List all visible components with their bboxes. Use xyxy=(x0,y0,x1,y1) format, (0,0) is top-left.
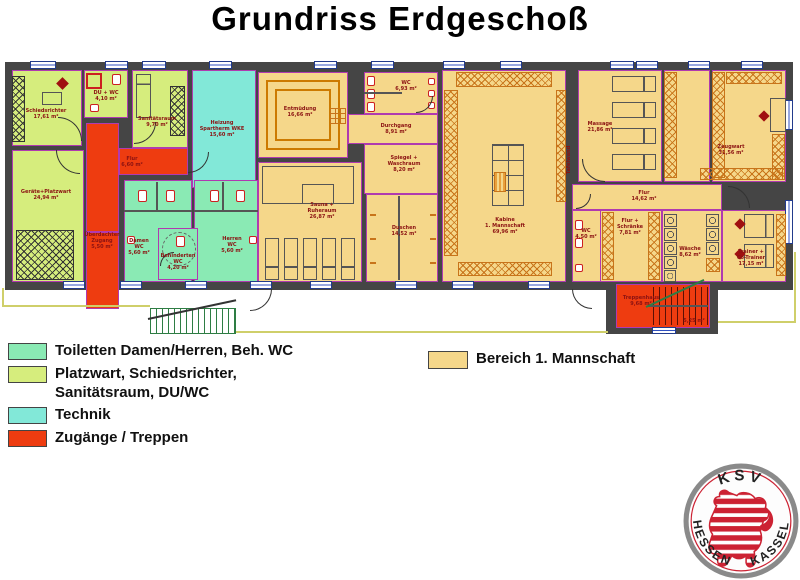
locker-shelf xyxy=(444,90,458,256)
window xyxy=(371,61,394,69)
legend-item-platzwart: Platzwart, Schiedsrichter, Sanitätsraum,… xyxy=(8,365,293,403)
table xyxy=(744,214,774,238)
table xyxy=(612,76,656,92)
window xyxy=(142,61,166,69)
partition-line xyxy=(124,210,192,212)
table xyxy=(612,154,656,170)
partition-line xyxy=(364,92,402,94)
sanitary-fixture xyxy=(138,190,147,202)
room-label-schiedsrichter: Schiedsrichter17,61 m² xyxy=(26,108,67,120)
room-label-massage: Massage21,86 m² xyxy=(588,121,613,133)
room-label-du_wc: DU + WC4,10 m² xyxy=(93,90,118,102)
window xyxy=(636,61,658,69)
legend-swatch-team xyxy=(428,351,468,369)
shower-jet xyxy=(370,214,376,216)
shower-jet xyxy=(370,262,376,264)
room-label-sanitaetsraum: Sanitätsraum9,70 m² xyxy=(138,116,176,128)
sanitary-fixture xyxy=(367,76,375,86)
door-swing xyxy=(572,289,592,309)
locker-shelf xyxy=(712,72,725,178)
legend-label-toiletten: Toiletten Damen/Herren, Beh. WC xyxy=(55,342,293,361)
sanitary-fixture xyxy=(249,236,257,244)
room-label-beh_wc: BehindertenWC4,20 m² xyxy=(161,253,196,271)
lounger xyxy=(303,238,317,280)
locker-shelf xyxy=(456,72,552,87)
room-label-heizung: HeizungSpartherm WKE15,60 m² xyxy=(200,120,245,138)
locker-shelf xyxy=(664,72,677,178)
washing-machine xyxy=(664,256,677,269)
site-boundary-line xyxy=(794,252,796,323)
shower-jet xyxy=(430,214,436,216)
window xyxy=(250,281,272,289)
room-herren_wc xyxy=(194,180,258,282)
pool-ladder xyxy=(330,108,346,124)
window xyxy=(395,281,417,289)
partition-line xyxy=(156,182,158,210)
site-boundary-line xyxy=(2,305,150,307)
site-boundary-line xyxy=(236,331,608,333)
room-label-waesche: Wäsche8,62 m² xyxy=(679,246,701,258)
sanitary-fixture xyxy=(428,78,435,85)
window xyxy=(105,61,128,69)
door-swing xyxy=(250,289,272,311)
room-label-kabine: Kabine1. Mannschaft69,96 m² xyxy=(485,217,525,235)
window xyxy=(452,281,474,289)
shower-jet xyxy=(430,262,436,264)
sanitary-fixture xyxy=(367,89,375,99)
legend-label-team: Bereich 1. Mannschaft xyxy=(476,350,635,369)
washing-machine xyxy=(664,242,677,255)
room-flur_links xyxy=(86,123,119,232)
lounger xyxy=(284,238,298,280)
storage-shelf xyxy=(170,86,185,136)
window xyxy=(63,281,85,289)
room-label-sauna: Sauna +Ruheraum26,87 m² xyxy=(308,202,337,220)
sanitary-fixture xyxy=(236,190,245,202)
room-label-entmuedung: Entmüdung16,66 m² xyxy=(284,106,316,118)
legend-swatch-technik xyxy=(8,407,47,424)
partition-line xyxy=(398,196,400,280)
window xyxy=(741,61,763,69)
legend-swatch-platzwart xyxy=(8,366,47,383)
room-label-zeugwart: Zeugwart31,56 m² xyxy=(717,144,744,156)
window xyxy=(528,281,550,289)
ksv-hessen-kassel-logo: KSV HESSEN KASSEL xyxy=(682,462,800,580)
window xyxy=(500,61,522,69)
lounger xyxy=(265,238,279,280)
partition-line xyxy=(194,210,258,212)
partition-line xyxy=(222,182,224,210)
locker-shelf xyxy=(458,262,552,276)
legend-label-platzwart-line2: Sanitätsraum, DU/WC xyxy=(55,384,237,403)
shower-jet xyxy=(370,238,376,240)
legend-label-platzwart: Platzwart, Schiedsrichter, Sanitätsraum,… xyxy=(55,365,237,403)
table xyxy=(612,128,656,144)
locker-shelf xyxy=(726,72,782,84)
site-boundary-line xyxy=(718,321,796,323)
room-label-tafelwand: Tafelwand xyxy=(566,146,572,175)
window xyxy=(652,327,676,334)
room-label-flur_links: Flur6,60 m² xyxy=(121,156,142,168)
room-label-treppenhaus: Treppenhaus9,68 m² xyxy=(623,295,659,307)
storage-shelf xyxy=(16,230,74,280)
sauna-heater xyxy=(494,172,506,192)
window xyxy=(209,61,232,69)
room-label-wc_rechts: WC4,50 m² xyxy=(575,228,596,240)
sanitary-fixture xyxy=(367,102,375,112)
window xyxy=(120,281,142,289)
washing-machine xyxy=(706,228,719,241)
room-label-spiegel: Spiegel +Waschraum8,20 m² xyxy=(388,155,421,173)
legend-item-toiletten: Toiletten Damen/Herren, Beh. WC xyxy=(8,342,293,361)
washing-machine xyxy=(664,214,677,227)
room-label-flur_schraenke: Flur +Schränke7,81 m² xyxy=(617,218,643,236)
room-label-geraete: Geräte+Platzwart24,94 m² xyxy=(21,189,71,201)
room-label-herren_wc: HerrenWC5,60 m² xyxy=(221,236,242,254)
bed xyxy=(136,74,151,118)
sanitary-fixture xyxy=(166,190,175,202)
room-label-duschen: Duschen14,52 m² xyxy=(392,225,417,237)
window xyxy=(688,61,710,69)
sanitary-fixture xyxy=(90,104,99,112)
window xyxy=(30,61,56,69)
washing-machine xyxy=(664,270,676,282)
window xyxy=(785,200,793,244)
lounger xyxy=(322,238,336,280)
legend-item-technik: Technik xyxy=(8,406,293,425)
table xyxy=(612,102,656,118)
washing-machine xyxy=(706,242,719,255)
sanitary-fixture xyxy=(210,190,219,202)
window xyxy=(443,61,465,69)
locker-shelf xyxy=(700,168,783,180)
washing-machine xyxy=(706,214,719,227)
legend: Toiletten Damen/Herren, Beh. WC Platzwar… xyxy=(8,342,293,452)
room-label-zugang: ÜberdachterZugang5,50 m² xyxy=(84,232,119,250)
legend-swatch-toiletten xyxy=(8,343,47,360)
lounger xyxy=(341,238,355,280)
locker-shelf xyxy=(556,90,566,202)
sanitary-fixture xyxy=(575,264,583,272)
room-label-treppe2: 5,25 m² xyxy=(683,318,704,324)
legend-team: Bereich 1. Mannschaft xyxy=(428,350,635,369)
locker-shelf xyxy=(648,212,660,280)
legend-label-zugaenge: Zugänge / Treppen xyxy=(55,429,188,448)
legend-label-platzwart-line1: Platzwart, Schiedsrichter, xyxy=(55,365,237,384)
exterior-stairs xyxy=(150,308,236,334)
window xyxy=(785,100,793,130)
floor-plan: Schiedsrichter17,61 m²DU + WC4,10 m²Sani… xyxy=(0,0,800,559)
legend-item-zugaenge: Zugänge / Treppen xyxy=(8,429,293,448)
sanitary-fixture xyxy=(112,74,121,85)
shower-tray xyxy=(86,73,102,89)
washing-machine xyxy=(664,228,677,241)
room-duschen xyxy=(366,194,438,282)
locker-shelf xyxy=(706,258,720,272)
room-label-damen_wc: DamenWC5,60 m² xyxy=(128,238,149,256)
furniture xyxy=(770,98,786,132)
room-label-flur_rechts: Flur14,62 m² xyxy=(632,190,657,202)
locker-shelf xyxy=(602,212,614,280)
furniture xyxy=(42,92,62,105)
shower-jet xyxy=(430,238,436,240)
room-label-trainer: Trainer +Co-Trainer17,15 m² xyxy=(737,249,765,267)
window xyxy=(314,61,337,69)
window xyxy=(610,61,634,69)
legend-label-technik: Technik xyxy=(55,406,111,425)
storage-shelf xyxy=(12,76,25,142)
room-label-wc_mitte: WC6,93 m² xyxy=(395,80,416,92)
window xyxy=(185,281,207,289)
legend-swatch-zugaenge xyxy=(8,430,47,447)
sanitary-fixture xyxy=(176,236,185,247)
window xyxy=(310,281,332,289)
room-label-durchgang: Durchgang8,91 m² xyxy=(381,123,412,135)
locker-shelf xyxy=(776,214,786,276)
furniture xyxy=(302,184,334,204)
